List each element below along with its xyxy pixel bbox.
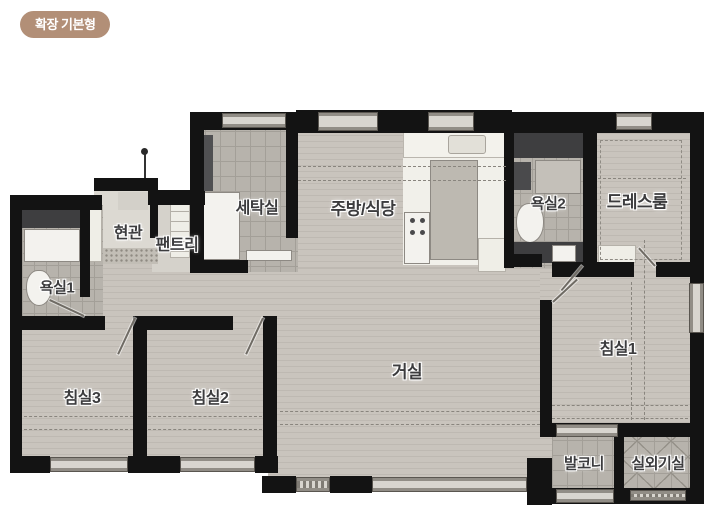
wall: [286, 116, 298, 238]
window-bedroom3: [50, 457, 128, 472]
wall: [263, 316, 277, 463]
wall: [540, 300, 552, 436]
wall: [262, 476, 296, 493]
extension-line: [280, 424, 540, 425]
window-kitchen-right: [428, 112, 474, 131]
refrigerator: [478, 238, 506, 272]
room-label-kitchen: 주방/식당: [331, 195, 396, 220]
room-label-laundry: 세탁실: [236, 194, 279, 218]
outdoor-unit-vent: [630, 490, 686, 501]
bathroom2-cabinet: [513, 162, 531, 190]
room-label-balcony: 발코니: [564, 453, 604, 474]
extension-line: [552, 405, 688, 406]
wall: [656, 262, 690, 277]
window-living-small: [296, 477, 330, 492]
room-label-bathroom2: 욕실2: [531, 193, 565, 214]
room-label-outdoor-unit: 실외기실: [631, 453, 684, 474]
wall: [330, 476, 372, 493]
wall: [504, 254, 542, 267]
stove: [404, 212, 430, 264]
laundry-door-leaf: [246, 250, 292, 261]
extension-line: [298, 180, 506, 181]
room-label-entrance: 현관: [114, 219, 142, 243]
window-dressroom: [616, 113, 652, 130]
extension-line: [298, 166, 506, 167]
wall: [583, 133, 597, 268]
room-label-pantry: 팬트리: [156, 231, 199, 255]
room-label-bedroom1: 침실1: [600, 335, 637, 359]
extension-line: [148, 416, 262, 417]
wall: [527, 458, 552, 505]
entrance-marker-line: [144, 153, 146, 180]
balcony-door: [556, 424, 618, 437]
entrance-marker-dot: [141, 148, 148, 155]
window-bedroom1-side: [689, 283, 704, 333]
wardrobe-outline: [644, 240, 645, 420]
room-label-bedroom2: 침실2: [192, 384, 229, 408]
wall: [190, 260, 248, 273]
extension-line: [280, 411, 540, 412]
bathtub: [24, 229, 80, 262]
washer: [200, 192, 240, 260]
room-label-bedroom3: 침실3: [64, 384, 101, 408]
plan-type-badge: 확장 기본형: [20, 11, 110, 38]
wall: [552, 262, 634, 277]
room-label-dressroom: 드레스룸: [607, 188, 668, 213]
extension-line: [24, 416, 133, 417]
wall: [80, 205, 90, 297]
bathroom1-duct: [22, 207, 80, 228]
floorplan-canvas: 확장 기본형: [0, 0, 717, 512]
extension-line: [24, 429, 133, 430]
wall: [10, 316, 105, 330]
entrance-outside-strip: [118, 192, 148, 210]
kitchen-island: [430, 160, 478, 260]
wall: [504, 133, 514, 268]
room-label-living: 거실: [392, 358, 422, 383]
extension-line: [148, 429, 262, 430]
bathroom2-shower: [513, 133, 583, 158]
wall: [10, 456, 50, 473]
wall: [10, 195, 22, 473]
entrance-step-tiles: [94, 248, 158, 264]
window-bedroom2: [180, 457, 255, 472]
window-living-main: [372, 477, 527, 492]
bathroom2-sink: [535, 160, 581, 194]
window-kitchen-left: [318, 112, 378, 131]
wall: [133, 316, 147, 463]
laundry-cabinet: [204, 135, 213, 191]
window-balcony: [556, 489, 614, 503]
extension-line: [552, 418, 688, 419]
wall: [508, 112, 704, 133]
kitchen-sink: [448, 135, 486, 154]
wall: [139, 316, 233, 330]
room-floor-living: [268, 318, 552, 490]
bathroom2-basin: [552, 245, 576, 262]
room-label-bathroom1: 욕실1: [40, 277, 74, 298]
window-laundry: [222, 113, 286, 128]
